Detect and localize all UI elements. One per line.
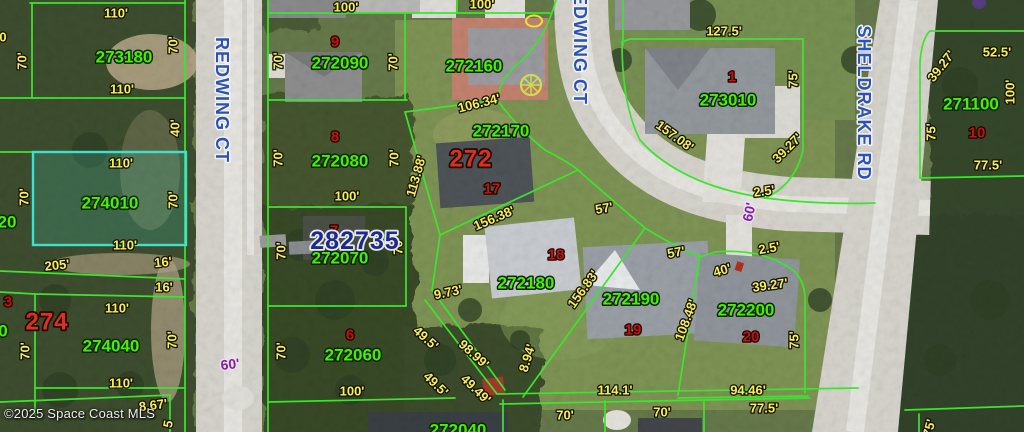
block-number-label: 272 <box>449 146 492 173</box>
parcel-number-label: 273010 <box>700 91 757 110</box>
lot-number-label: 3 <box>4 294 12 311</box>
dimension-label: 100' <box>470 0 495 12</box>
lot-number-label: 1 <box>728 69 736 86</box>
dimension-label: 2.5' <box>752 182 775 200</box>
street-name-label: REDWING CT <box>212 37 232 163</box>
dimension-label: 70' <box>653 405 671 420</box>
watermark: ©2025 Space Coast MLS <box>4 406 155 421</box>
dimension-label: 94.46' <box>730 383 766 398</box>
dimension-label: 70' <box>17 188 32 206</box>
parcel-map[interactable]: 110'70'70'0110'40'110'70'70'110'205'16'1… <box>0 0 1024 432</box>
parcel-map-canvas[interactable]: 110'70'70'0110'40'110'70'70'110'205'16'1… <box>0 0 1024 432</box>
lot-number-label: 8 <box>331 129 339 146</box>
dimension-label: 70' <box>166 36 181 54</box>
parcel-number-label: 20 <box>0 213 16 232</box>
dimension-label: 110' <box>113 238 137 253</box>
street-name-label: REDWING CT <box>570 0 590 105</box>
dimension-label: 16' <box>153 254 172 271</box>
parcel-number-label: 272160 <box>446 57 503 76</box>
parcel-number-label: 274040 <box>83 337 140 356</box>
dimension-label: 110' <box>109 156 133 171</box>
dimension-label: 100' <box>1003 80 1018 105</box>
dimension-label: 114.1' <box>598 383 633 398</box>
parcel-number-label: 272170 <box>473 122 530 141</box>
dimension-label: 77.5' <box>750 401 778 416</box>
lot-number-label: 10 <box>969 125 986 142</box>
lot-number-label: 17 <box>484 181 501 198</box>
dimension-label: 70' <box>556 408 574 423</box>
parcel-number-label: 272080 <box>312 152 369 171</box>
dimension-label: 16' <box>155 280 173 295</box>
dimension-label: 100' <box>340 384 365 399</box>
parcel-number-label: 272060 <box>325 346 382 365</box>
dimension-label: 75' <box>787 331 802 349</box>
dimension-label: 100' <box>334 0 359 15</box>
dimension-label: 70' <box>15 52 30 70</box>
dimension-label: 77.5' <box>974 158 1002 173</box>
dimension-label: 70' <box>387 149 402 167</box>
road-width-label: 60' <box>220 355 240 373</box>
dimension-label: 70' <box>274 242 289 260</box>
parcel-number-label: 0 <box>0 322 8 341</box>
dimension-label: 40' <box>168 119 183 137</box>
block-number-label: 274 <box>25 309 68 336</box>
lot-number-label: 6 <box>346 327 354 344</box>
mls-listing-number[interactable]: 282735 <box>310 227 399 255</box>
dimension-label: 70' <box>271 52 286 70</box>
street-name-label: SHELDRAKE RD <box>854 25 874 180</box>
lot-number-label: 9 <box>331 34 339 51</box>
lot-number-label: 19 <box>625 322 642 339</box>
parcel-number-label: 273180 <box>96 48 153 67</box>
dimension-label: 110' <box>105 301 129 316</box>
dimension-label: 75' <box>924 123 939 141</box>
dimension-label: 70' <box>166 191 181 209</box>
dimension-label: 110' <box>104 6 128 21</box>
parcel-number-label: 272180 <box>498 274 555 293</box>
dimension-label: 110' <box>110 82 134 97</box>
parcel-number-label: 272090 <box>312 54 369 73</box>
dimension-label: 110' <box>109 376 133 391</box>
dimension-label: 52.5' <box>983 45 1011 60</box>
dimension-label: 75' <box>786 70 801 88</box>
lot-number-label: 18 <box>548 247 565 264</box>
parcel-number-label: 272190 <box>603 290 660 309</box>
parcel-number-label: 272040 <box>430 421 487 432</box>
dimension-label: 70' <box>165 331 180 349</box>
parcel-number-label: 274010 <box>82 194 139 213</box>
dimension-label: 70' <box>271 149 286 167</box>
dimension-label: 70' <box>386 53 401 71</box>
dimension-label: 0 <box>0 30 7 45</box>
parcel-number-label: 272200 <box>718 301 775 320</box>
parcel-number-label: 271100 <box>943 95 999 114</box>
dimension-label: 57' <box>666 243 686 261</box>
dimension-label: 70' <box>18 342 33 360</box>
lot-number-label: 20 <box>743 329 760 346</box>
dimension-label: 205' <box>44 256 70 274</box>
dimension-label: 57' <box>594 199 614 217</box>
dimension-label: 100' <box>335 189 360 204</box>
dimension-label: 70' <box>274 342 289 360</box>
dimension-label: 127.5' <box>706 24 742 39</box>
